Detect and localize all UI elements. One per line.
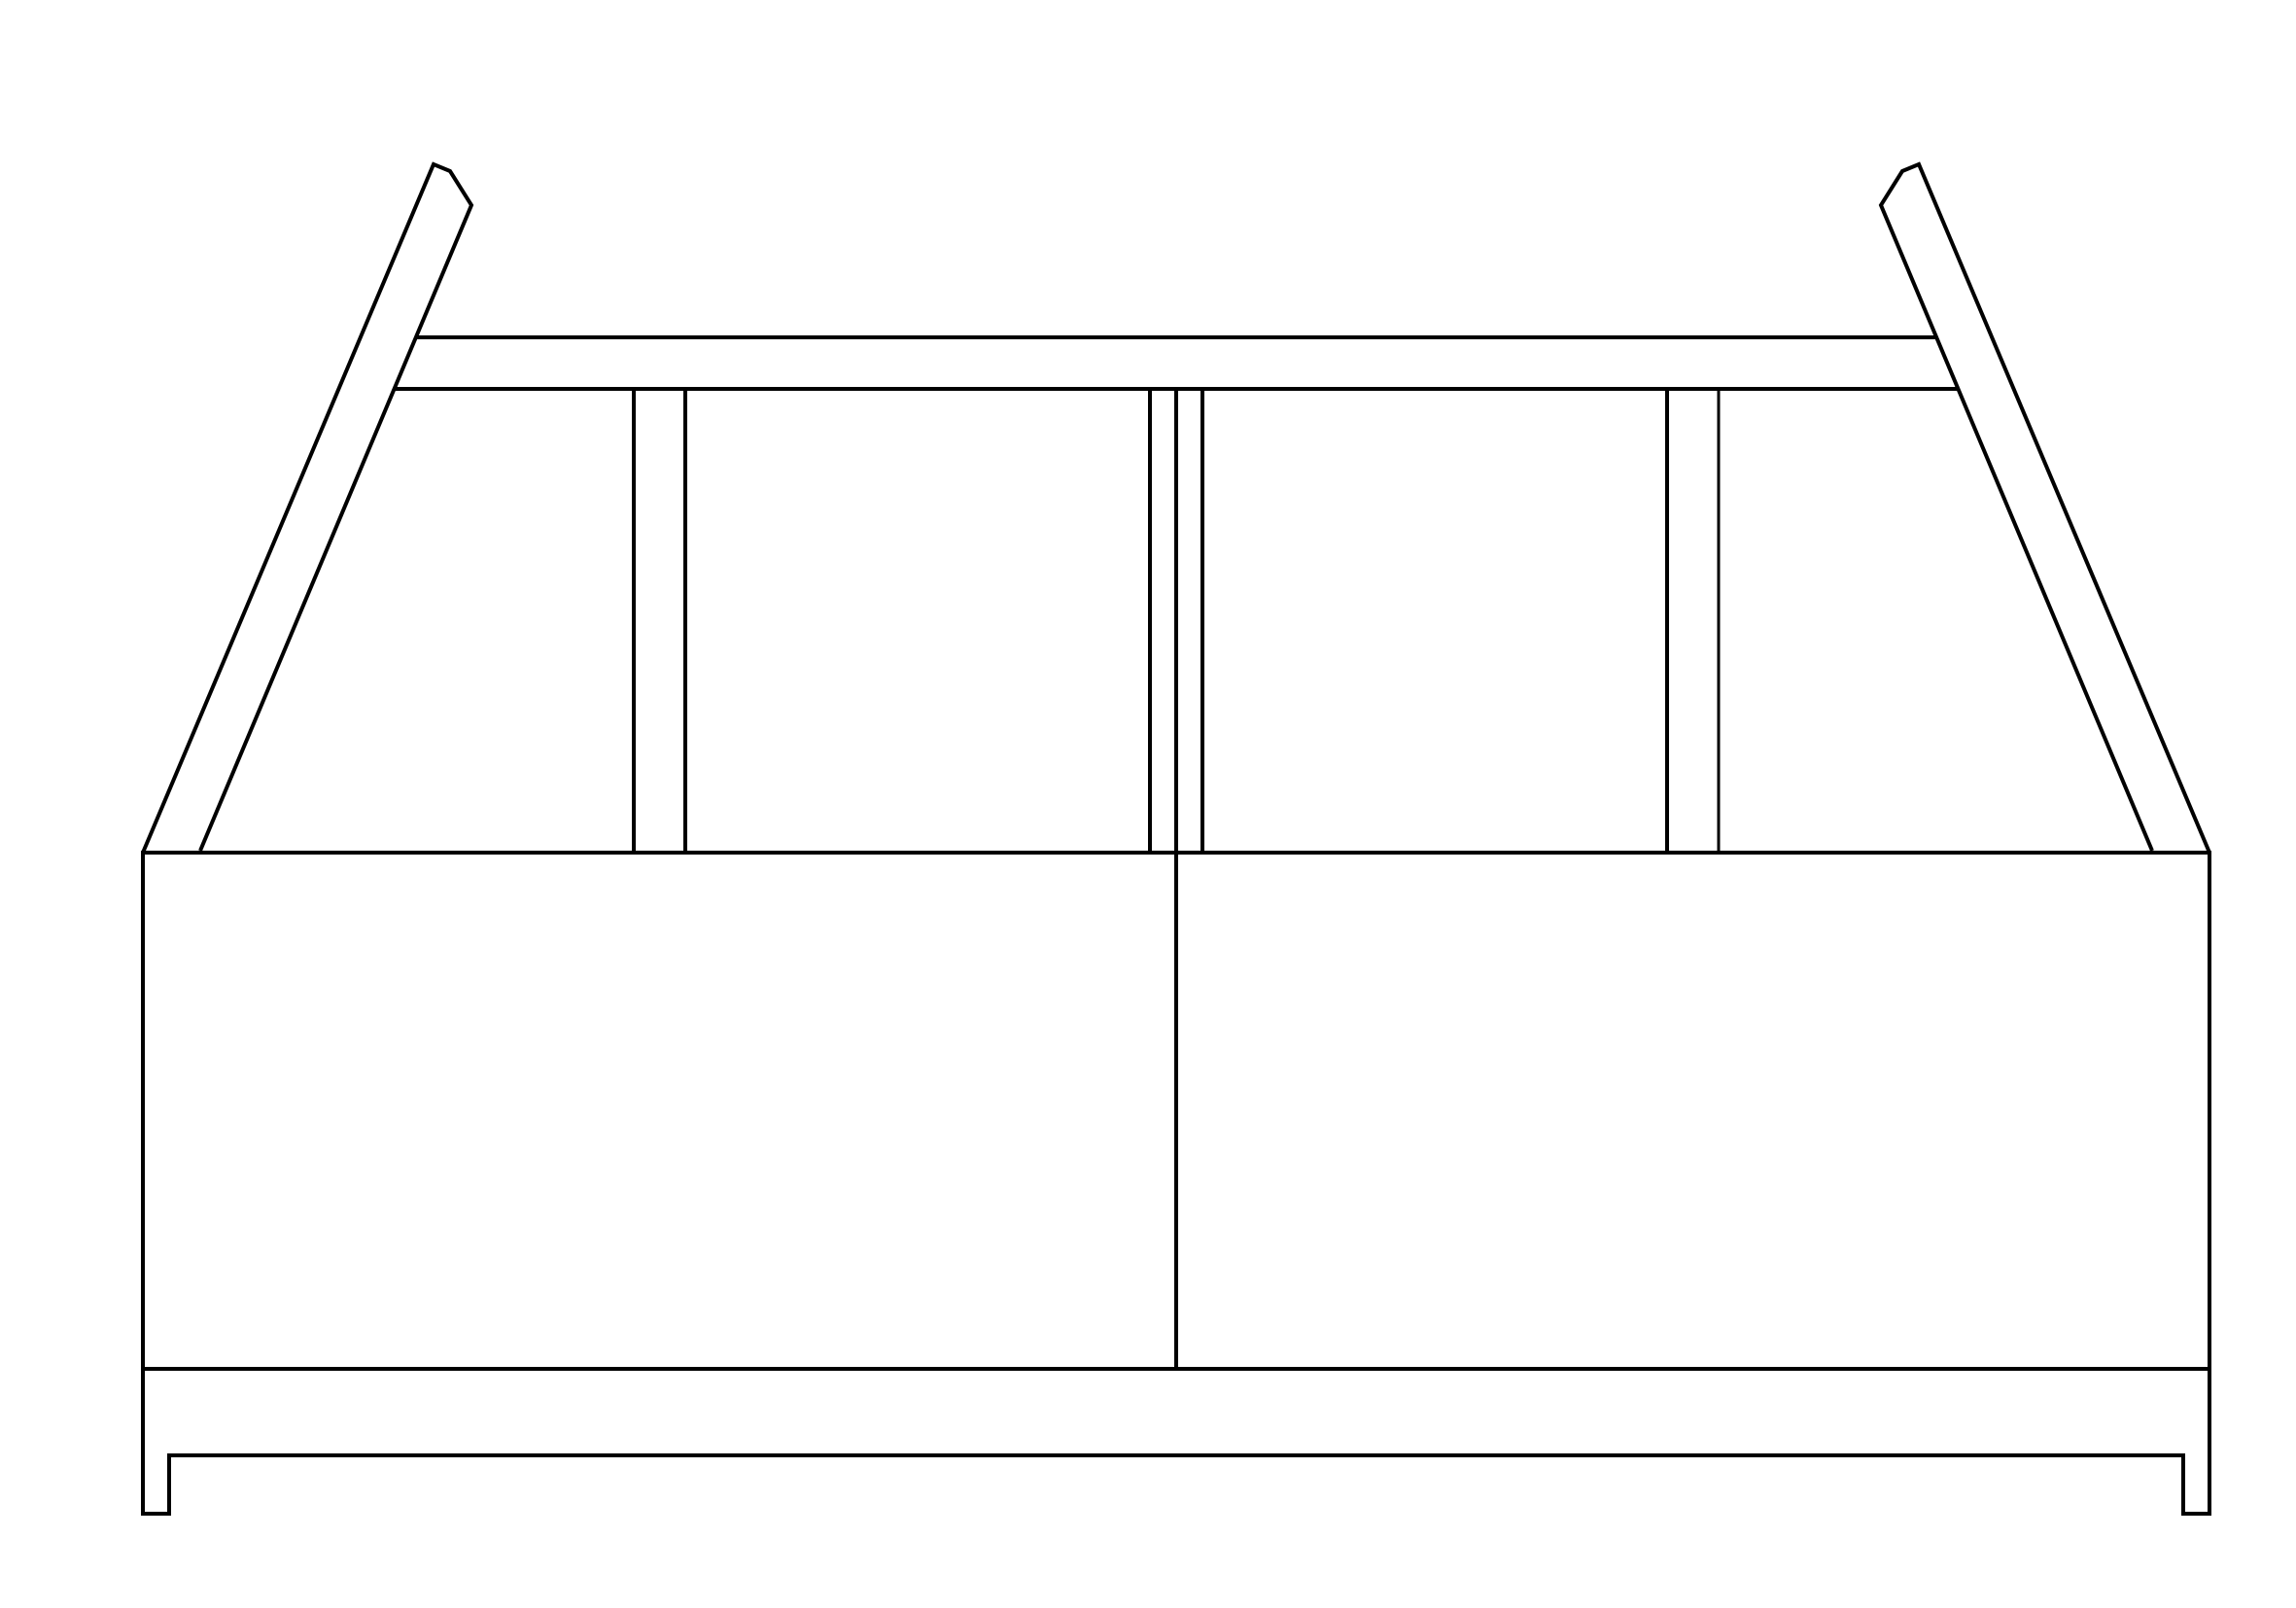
drawing-canvas — [0, 0, 2296, 1608]
left-corner-post — [143, 164, 471, 853]
right-corner-post — [1881, 164, 2209, 853]
outline-line-drawing — [0, 0, 2296, 1608]
